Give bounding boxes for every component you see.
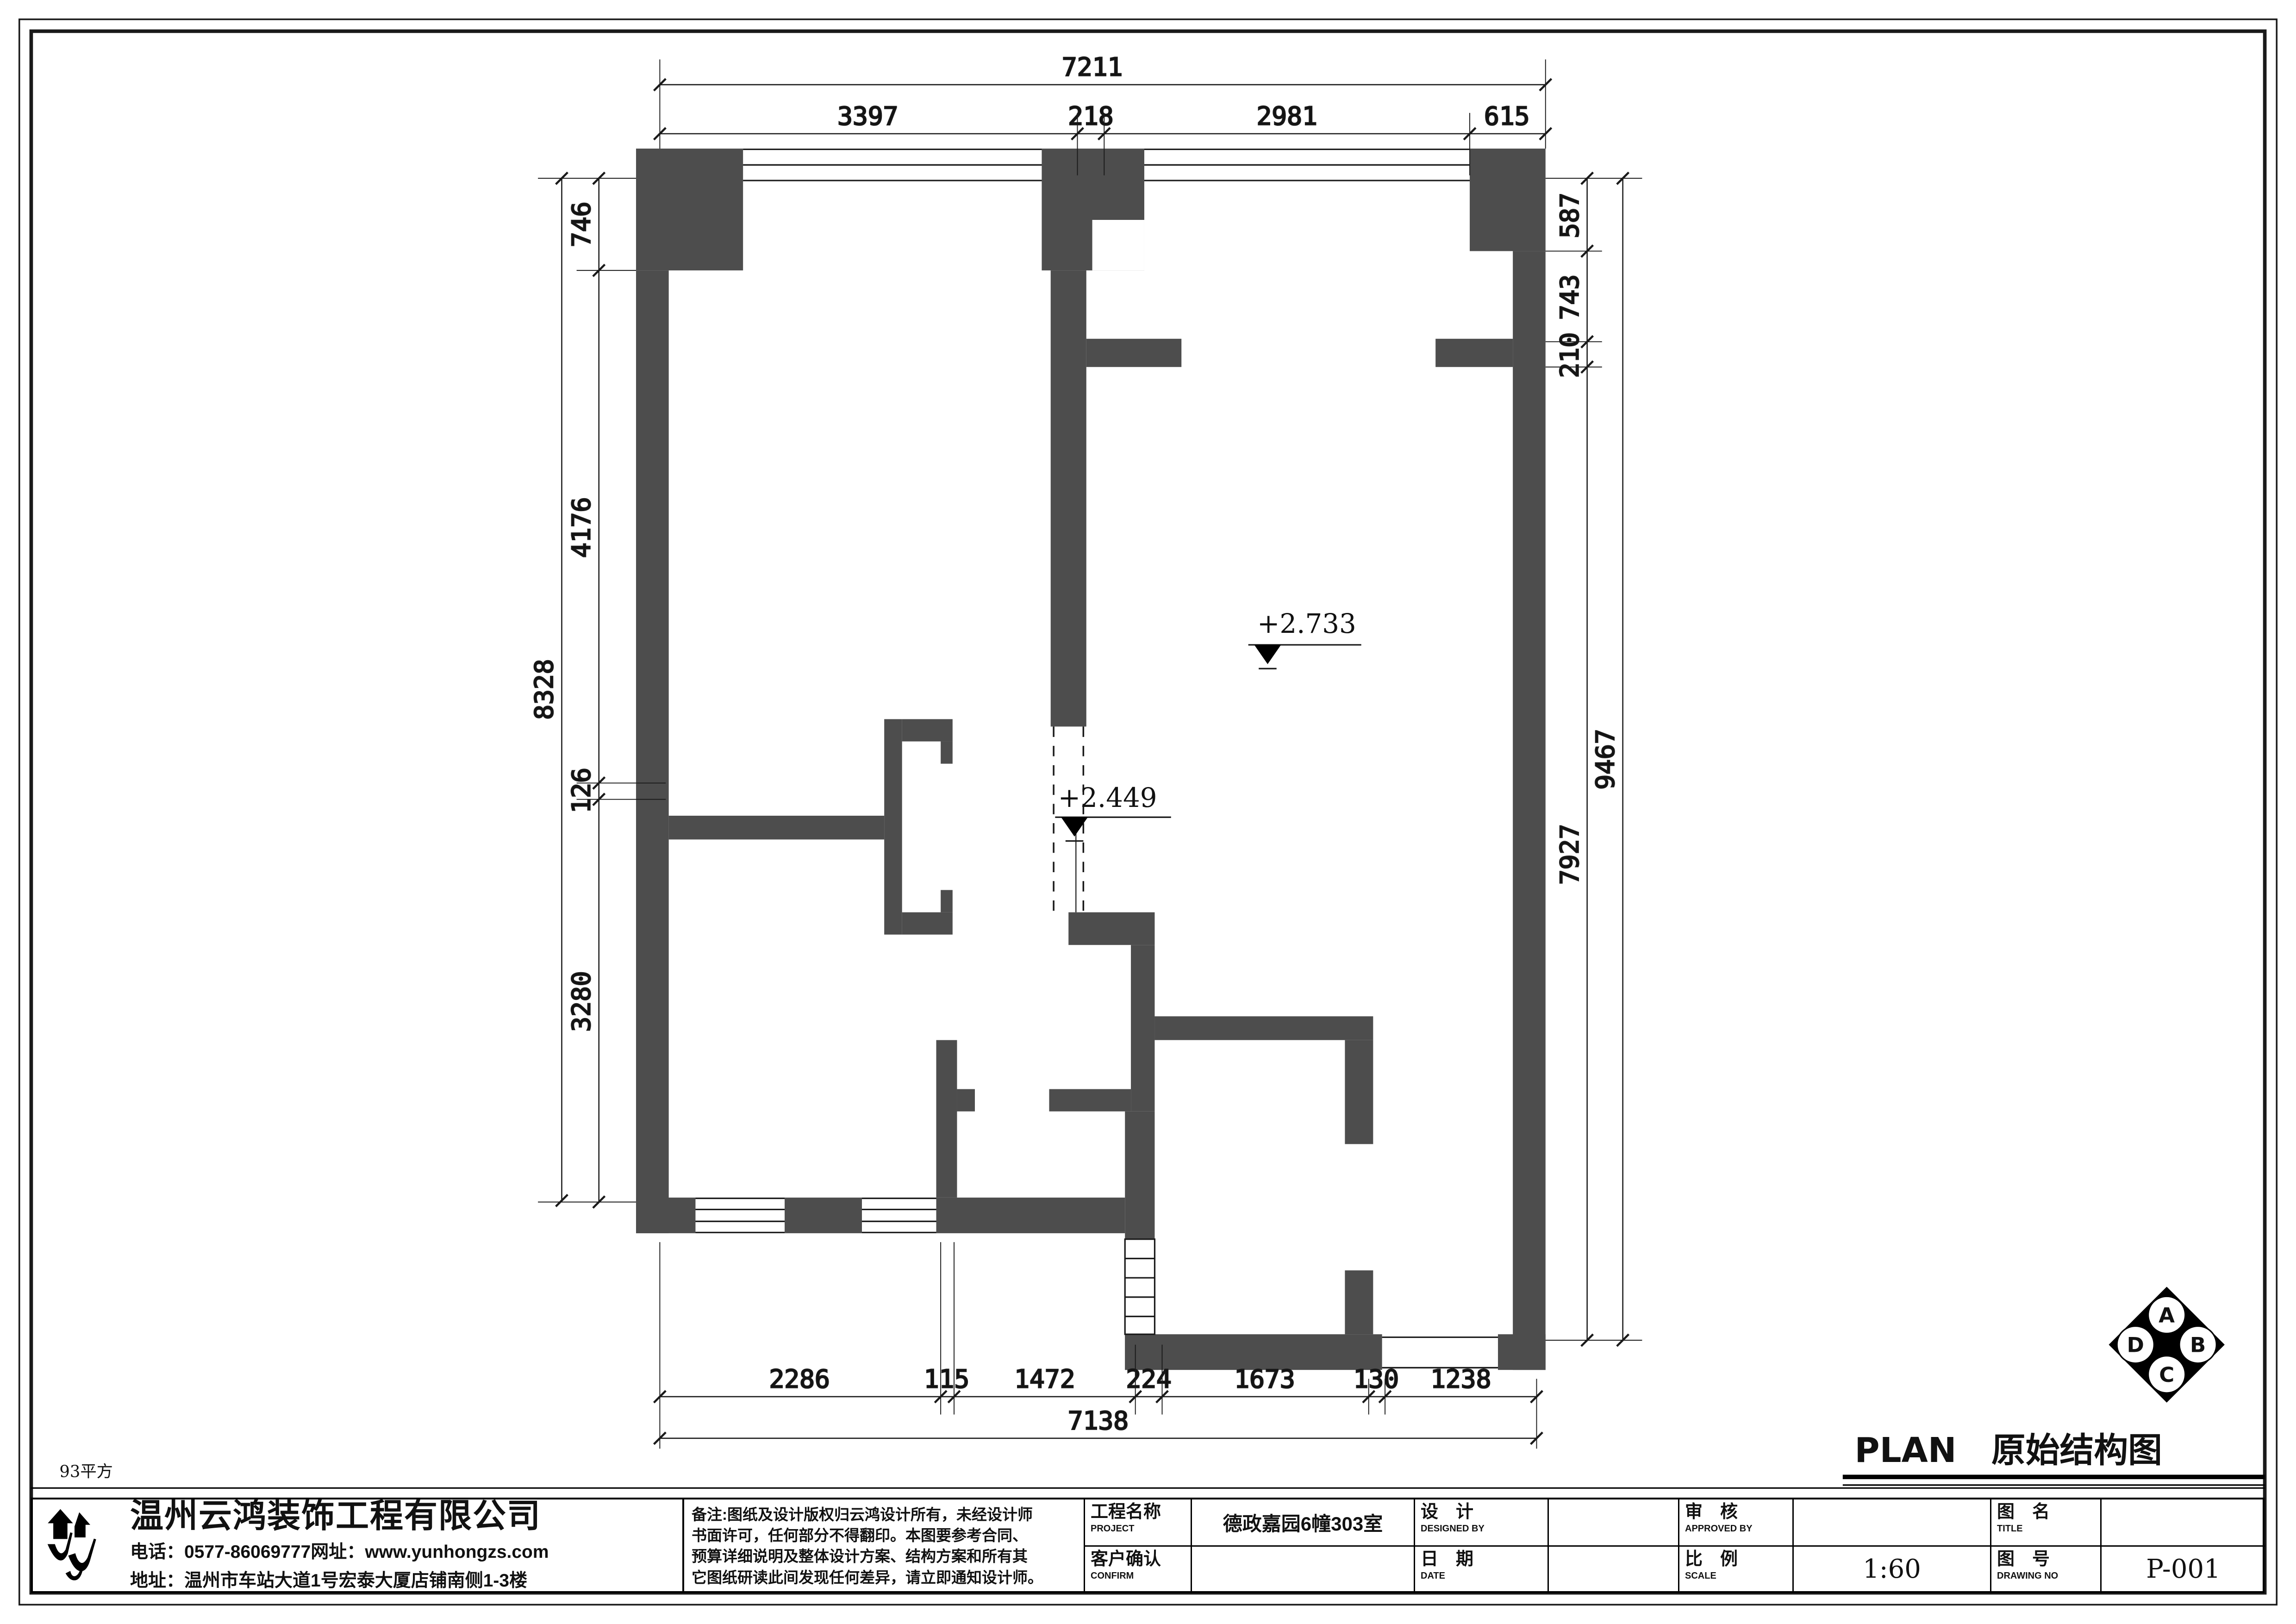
dim-bottom-seg3: 1472 bbox=[1014, 1364, 1075, 1394]
elevation-upper-label: +2.733 bbox=[1257, 608, 1356, 639]
elevation-marker-lower: +2.449 bbox=[1055, 782, 1171, 841]
cell-approved-value bbox=[1792, 1499, 1990, 1545]
window-top-left bbox=[743, 150, 1042, 181]
company-block: 温州云鸿装饰工程有限公司 电话：0577-86069777网址：www.yunh… bbox=[33, 1499, 682, 1591]
wall-middle-stub bbox=[1086, 339, 1181, 367]
company-logo-icon bbox=[43, 1506, 122, 1585]
confirm-label-en: CONFIRM bbox=[1091, 1571, 1191, 1581]
project-label-zh: 工程名称 bbox=[1091, 1502, 1191, 1523]
wall-closet-spine bbox=[884, 719, 902, 934]
date-label-en: DATE bbox=[1421, 1571, 1547, 1581]
dim-top-seg2: 218 bbox=[1068, 101, 1114, 131]
drawing-sheet: +2.733 +2.449 7211 3397 218 2981 615 bbox=[0, 0, 2296, 1624]
wall-bath-left-upper bbox=[1125, 1112, 1154, 1239]
window-top-right bbox=[1144, 150, 1470, 181]
notes-block: 备注:图纸及设计版权归云鸿设计所有，未经设计师 书面许可，任何部分不得翻印。本图… bbox=[682, 1499, 1084, 1591]
address-value: 温州市车站大道1号宏泰大厦店铺南侧1-3楼 bbox=[184, 1571, 527, 1591]
note-line-3: 预算详细说明及整体设计方案、结构方案和所有其 bbox=[692, 1546, 1077, 1567]
dim-top-overall-label: 7211 bbox=[1062, 52, 1123, 82]
dim-left-seg2: 4176 bbox=[567, 497, 596, 558]
wall-middle-vertical bbox=[1051, 270, 1086, 726]
project-value: 德政嘉园6幢303室 bbox=[1223, 1508, 1383, 1537]
wall-bath-right-upper bbox=[1345, 1040, 1373, 1144]
cell-drawing-no-label: 图 号 DRAWING NO bbox=[1990, 1545, 2100, 1591]
elevation-upper-triangle bbox=[1254, 645, 1281, 664]
wall-closet-bottom-arm bbox=[902, 912, 953, 935]
wall-bath-right-lower bbox=[1345, 1270, 1373, 1334]
window-bottom-left-1 bbox=[695, 1198, 785, 1232]
title-block: 温州云鸿装饰工程有限公司 电话：0577-86069777网址：www.yunh… bbox=[31, 1498, 2265, 1593]
dim-bottom-seg1: 2286 bbox=[769, 1364, 830, 1394]
company-name: 温州云鸿装饰工程有限公司 bbox=[130, 1499, 549, 1535]
note-line-2: 书面许可，任何部分不得翻印。本图要参考合同、 bbox=[692, 1525, 1077, 1546]
title-table: 工程名称 PROJECT 德政嘉园6幢303室 设 计 DESIGNED BY … bbox=[1084, 1499, 2263, 1591]
area-note: 93平方 bbox=[59, 1462, 113, 1481]
drawing-no-value: P-001 bbox=[2146, 1554, 2220, 1584]
compass-c: C bbox=[2159, 1362, 2174, 1387]
dim-left-seg4: 3280 bbox=[567, 971, 596, 1032]
wall-room-divider bbox=[669, 816, 885, 839]
phone-value: 0577-86069777 bbox=[184, 1542, 311, 1562]
designed-label-zh: 设 计 bbox=[1421, 1502, 1547, 1523]
project-label-en: PROJECT bbox=[1091, 1524, 1191, 1534]
website-value: www.yunhongzs.com bbox=[365, 1542, 549, 1562]
phone-label: 电话： bbox=[130, 1542, 184, 1562]
elevation-lower-label: +2.449 bbox=[1058, 782, 1157, 813]
scale-label-zh: 比 例 bbox=[1685, 1549, 1792, 1570]
wall-shaft-bottom bbox=[1049, 1089, 1131, 1112]
cell-project-value: 德政嘉园6幢303室 bbox=[1191, 1499, 1414, 1545]
elevation-marker-upper: +2.733 bbox=[1248, 608, 1361, 668]
cell-designed-value bbox=[1547, 1499, 1678, 1545]
approved-label-zh: 审 核 bbox=[1685, 1502, 1792, 1523]
wall-closet-top-cap bbox=[941, 742, 953, 764]
dim-bottom-overall-label: 7138 bbox=[1068, 1406, 1129, 1436]
dim-top-seg1: 3397 bbox=[837, 101, 898, 131]
cell-designed-label: 设 计 DESIGNED BY bbox=[1414, 1499, 1547, 1545]
dim-bottom-seg7: 1238 bbox=[1430, 1364, 1491, 1394]
cell-scale-value: 1:60 bbox=[1792, 1545, 1990, 1591]
dim-right-seg3: 210 bbox=[1554, 332, 1584, 378]
cell-date-label: 日 期 DATE bbox=[1414, 1545, 1547, 1591]
plan-title: PLAN 原始结构图 bbox=[1843, 1430, 2265, 1485]
note-line-1: 备注:图纸及设计版权归云鸿设计所有，未经设计师 bbox=[692, 1504, 1077, 1525]
wall-right bbox=[1513, 251, 1546, 1370]
dim-right-seg2: 743 bbox=[1554, 275, 1584, 320]
cell-date-value bbox=[1547, 1545, 1678, 1591]
wall-closet-top-arm bbox=[902, 719, 953, 741]
wall-bottom-right-b bbox=[1498, 1334, 1546, 1370]
window-bottom-balcony bbox=[1382, 1337, 1498, 1368]
dim-right-seg4: 7927 bbox=[1554, 824, 1584, 885]
stairs-strip bbox=[1125, 1239, 1154, 1334]
cell-confirm-label: 客户确认 CONFIRM bbox=[1084, 1545, 1191, 1591]
wall-shaft-right bbox=[1131, 945, 1154, 1111]
wall-top-left-column bbox=[636, 149, 743, 270]
company-address-line: 地址：温州市车站大道1号宏泰大厦店铺南侧1-3楼 bbox=[130, 1566, 549, 1592]
title-label-en: TITLE bbox=[1997, 1524, 2100, 1534]
dim-left-seg3: 126 bbox=[567, 768, 596, 813]
wall-shaft-top bbox=[1068, 912, 1154, 945]
drawing-no-label-zh: 图 号 bbox=[1997, 1549, 2100, 1570]
note-line-4: 它图纸研读此间发现任何差异，请立即通知设计师。 bbox=[692, 1567, 1077, 1588]
wall-hall-stub bbox=[957, 1089, 975, 1112]
cell-approved-label: 审 核 APPROVED BY bbox=[1678, 1499, 1792, 1545]
scale-label-en: SCALE bbox=[1685, 1571, 1792, 1581]
dim-top-seg4: 615 bbox=[1484, 101, 1530, 131]
dim-right-overall-label: 9467 bbox=[1590, 729, 1620, 789]
walls bbox=[636, 149, 1546, 1370]
dim-left-overall: 8328 bbox=[529, 172, 568, 1206]
company-phone-line: 电话：0577-86069777网址：www.yunhongzs.com bbox=[130, 1537, 549, 1563]
wall-top-right-column bbox=[1470, 149, 1546, 251]
confirm-label-zh: 客户确认 bbox=[1091, 1549, 1191, 1570]
cell-confirm-value bbox=[1191, 1545, 1414, 1591]
compass-b: B bbox=[2190, 1333, 2206, 1357]
cell-title-label: 图 名 TITLE bbox=[1990, 1499, 2100, 1545]
cell-scale-label: 比 例 SCALE bbox=[1678, 1545, 1792, 1591]
wall-bottom-left-a bbox=[636, 1198, 695, 1233]
dim-left-seg1: 746 bbox=[567, 201, 596, 247]
dim-bottom-seg4: 224 bbox=[1126, 1364, 1172, 1394]
dim-bottom-overall: 7138 bbox=[654, 1406, 1543, 1444]
web-label: 网址： bbox=[311, 1542, 365, 1562]
drawing-no-label-en: DRAWING NO bbox=[1997, 1571, 2100, 1581]
dim-right-detail: 587 743 210 7927 bbox=[1554, 172, 1593, 1346]
compass-a: A bbox=[2159, 1303, 2175, 1327]
plan-title-zh: 原始结构图 bbox=[1991, 1430, 2162, 1470]
compass-d: D bbox=[2127, 1333, 2144, 1357]
title-label-zh: 图 名 bbox=[1997, 1502, 2100, 1523]
dim-bottom-seg5: 1673 bbox=[1234, 1364, 1295, 1394]
wall-bottom-left-b bbox=[785, 1198, 862, 1233]
scale-value: 1:60 bbox=[1863, 1554, 1921, 1584]
dim-left-overall-label: 8328 bbox=[529, 659, 559, 720]
address-label: 地址： bbox=[130, 1571, 184, 1591]
cell-drawing-no-value: P-001 bbox=[2100, 1545, 2265, 1591]
cell-title-value bbox=[2100, 1499, 2265, 1545]
windows bbox=[695, 150, 1498, 1368]
wall-right-stub bbox=[1435, 339, 1513, 367]
dim-bottom-seg2: 115 bbox=[924, 1364, 970, 1394]
dim-top-overall: 7211 bbox=[654, 52, 1552, 91]
date-label-zh: 日 期 bbox=[1421, 1549, 1547, 1570]
window-bottom-left-2 bbox=[862, 1198, 936, 1232]
compass-icon: A B C D bbox=[2109, 1287, 2224, 1402]
dim-top-seg3: 2981 bbox=[1256, 101, 1317, 131]
floor-plan-canvas: +2.733 +2.449 7211 3397 218 2981 615 bbox=[0, 0, 2296, 1624]
dim-bottom-seg6: 130 bbox=[1354, 1364, 1399, 1394]
wall-closet-bottom-cap bbox=[941, 890, 953, 912]
wall-bottom-left-c bbox=[936, 1198, 1125, 1233]
approved-label-en: APPROVED BY bbox=[1685, 1524, 1792, 1534]
designed-label-en: DESIGNED BY bbox=[1421, 1524, 1547, 1534]
wall-notch bbox=[1092, 220, 1144, 270]
wall-bath-top bbox=[1154, 1016, 1373, 1040]
wall-hall-partition bbox=[936, 1040, 957, 1198]
wall-left bbox=[636, 270, 669, 1233]
cell-project-label: 工程名称 PROJECT bbox=[1084, 1499, 1191, 1545]
plan-title-en: PLAN bbox=[1855, 1430, 1957, 1470]
dim-right-seg1: 587 bbox=[1554, 193, 1584, 238]
